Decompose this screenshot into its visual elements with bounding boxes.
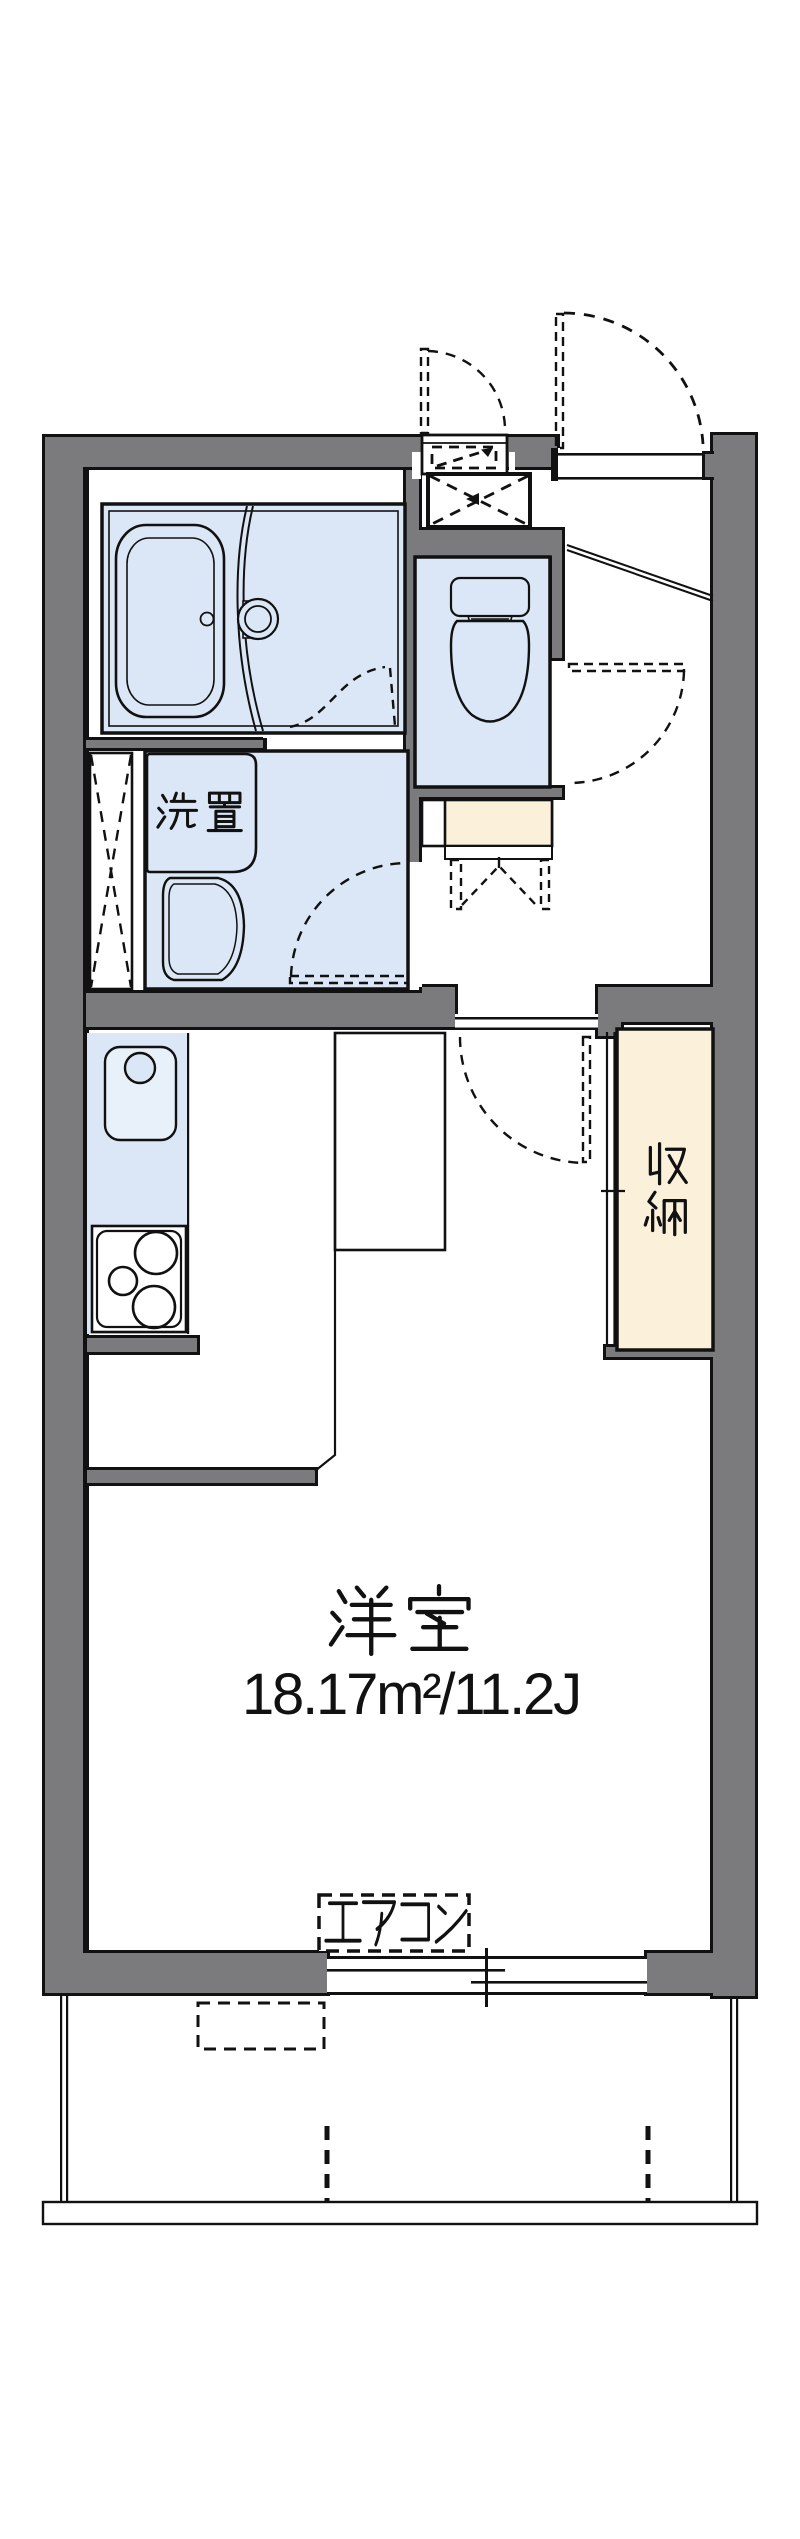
svg-text:18.17m²/11.2J: 18.17m²/11.2J — [242, 1662, 580, 1727]
